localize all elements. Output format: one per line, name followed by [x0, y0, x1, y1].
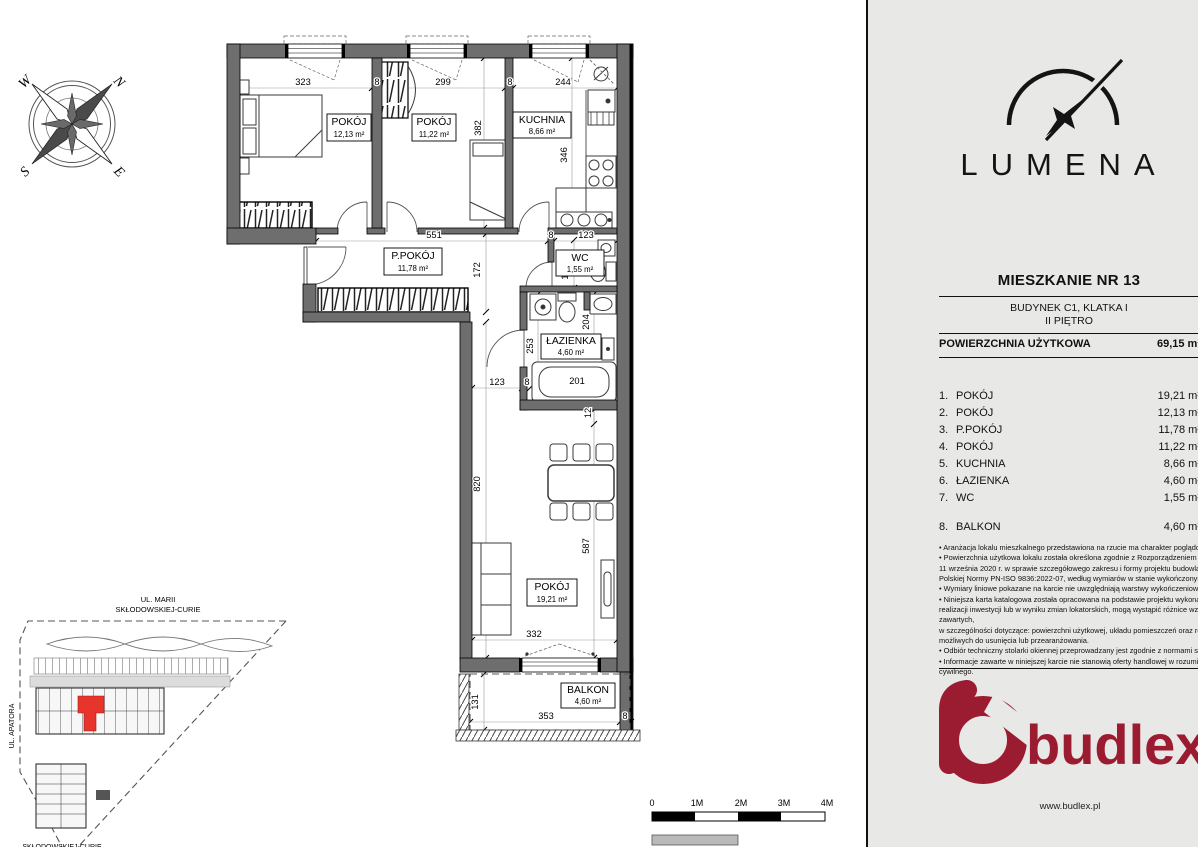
disclaimer-line: realizacji inwestycji lub w wyniku zmian… — [939, 605, 1198, 615]
drainer — [588, 112, 614, 125]
room-list-row: 1. POKÓJ 19,21 m² — [939, 390, 1198, 402]
room-name: POKÓJ — [535, 580, 570, 593]
compass-east-label: E — [110, 163, 128, 181]
kitchen-sink — [588, 90, 615, 112]
dim-253: 253 — [525, 338, 535, 354]
room-area: 1,55 m² — [567, 265, 594, 274]
sofa — [470, 543, 511, 635]
compass-south-label: S — [18, 165, 34, 181]
dim-332: 332 — [526, 629, 542, 639]
window — [406, 36, 468, 80]
disclaimer-line: 11 września 2020 r. w sprawie szczegółow… — [939, 564, 1198, 574]
room-list-row: 2. POKÓJ 12,13 m² — [939, 407, 1198, 419]
disclaimer-line: • Niniejsza karta katalogowa została opr… — [939, 595, 1198, 605]
divider — [939, 668, 1198, 669]
budlex-wordmark: budlex — [1026, 713, 1198, 776]
disclaimer-line: • Odbiór techniczny stolarki okiennej pr… — [939, 646, 1198, 656]
room-label-balkon: BALKON 4,60 m² — [561, 683, 615, 708]
site-plan: UL. MARII SKŁODOWSKIEJ-CURIE UL. APATORA… — [9, 595, 286, 847]
room-area: 4,60 m² — [558, 348, 585, 357]
scale-4m: 4M — [821, 798, 834, 808]
balcony-door — [519, 644, 601, 672]
room-label-pokoj-19: POKÓJ 19,21 m² — [527, 579, 577, 606]
door-kitchen — [519, 202, 549, 232]
room-no: 2. — [939, 407, 956, 419]
dim-131: 131 — [470, 694, 480, 710]
toilet-tank — [606, 262, 616, 281]
road — [30, 676, 230, 687]
landscape-shape — [47, 637, 125, 651]
room-list-row: 4. POKÓJ 11,22 m² — [939, 441, 1198, 453]
dim-353: 353 — [538, 711, 554, 721]
dim-323: 323 — [295, 77, 311, 87]
room-area: 12,13 m² — [1158, 407, 1198, 419]
room-area: 19,21 m² — [537, 595, 568, 604]
disclaimer-line: • Informacje zawarte w niniejszej karcie… — [939, 657, 1198, 667]
door-room — [387, 202, 417, 232]
radiator — [601, 560, 614, 618]
room-area: 8,66 m² — [529, 127, 556, 136]
door-bedroom — [337, 202, 367, 232]
room-label-pokoj-11: POKÓJ 11,22 m² — [412, 114, 456, 141]
dim-8: 8 — [507, 77, 512, 87]
landscape-shape — [125, 637, 201, 651]
floor-plan-sheet: W N S E — [0, 0, 866, 847]
room-area: 1,55 m² — [1164, 492, 1198, 504]
dim-8: 8 — [622, 711, 627, 721]
toilet — [559, 302, 575, 322]
usable-area-value: 69,15 m² — [1157, 338, 1198, 350]
room-label-wc: WC 1,55 m² — [556, 250, 604, 276]
room-area: 11,22 m² — [1158, 441, 1198, 453]
apartment-title: MIESZKANIE NR 13 — [909, 272, 1198, 289]
dim-204: 204 — [581, 314, 591, 330]
dim-8: 8 — [524, 377, 529, 387]
room-area: 8,66 m² — [1164, 458, 1198, 470]
dim-12: 12 — [583, 408, 593, 418]
room-area: 4,60 m² — [1164, 475, 1198, 487]
room-name: POKÓJ — [956, 407, 1158, 419]
chair — [573, 444, 590, 461]
window — [284, 36, 346, 80]
balcony-railing — [459, 674, 469, 730]
chair — [573, 503, 590, 520]
landscape-shape — [201, 638, 272, 651]
compass-rose-icon: W N S E — [16, 72, 128, 181]
room-no: 5. — [939, 458, 956, 470]
cabinet — [556, 188, 586, 212]
street-label-top2: SKŁODOWSKIEJ-CURIE — [115, 605, 200, 614]
divider — [939, 357, 1198, 358]
brand-wordmark: LUMENA — [923, 147, 1198, 183]
dim-587: 587 — [581, 538, 591, 554]
scale-1m: 1M — [691, 798, 704, 808]
room-no: 4. — [939, 441, 956, 453]
divider — [939, 333, 1198, 334]
disclaimer-line: • Aranżacja lokalu mieszkalnego przedsta… — [939, 543, 1198, 553]
chair — [596, 444, 613, 461]
floor-info: II PIĘTRO — [909, 315, 1198, 327]
chair — [596, 503, 613, 520]
dim-551: 551 — [426, 230, 442, 240]
disclaimer-line: • Wymiary liniowe pokazane na karcie nie… — [939, 584, 1198, 594]
wardrobe — [378, 62, 408, 118]
door-entrance — [308, 247, 346, 285]
room-list-row: 7. WC 1,55 m² — [939, 492, 1198, 504]
room-name: ŁAZIENKA — [546, 336, 596, 347]
dim-123: 123 — [489, 377, 505, 387]
compass-north-label: N — [109, 73, 127, 91]
dim-123: 123 — [578, 230, 594, 240]
site-structure — [96, 790, 110, 800]
scale-3m: 3M — [778, 798, 791, 808]
room-name: WC — [571, 253, 589, 264]
balcony-railing — [456, 730, 640, 741]
room-name: POKÓJ — [332, 115, 367, 128]
parking-row — [34, 658, 228, 674]
entrance-threshold — [304, 247, 307, 284]
hall-wardrobe — [318, 288, 468, 312]
room-label-lazienka: ŁAZIENKA 4,60 m² — [541, 334, 601, 359]
room-name: POKÓJ — [956, 441, 1158, 453]
toilet-tank — [558, 293, 576, 301]
street-label-left: UL. APATORA — [9, 703, 16, 748]
compass-west-label: W — [16, 72, 36, 92]
disclaimer-line: możliwych do usunięcia lub przearanżowan… — [939, 636, 1198, 646]
room-name: BALKON — [567, 685, 609, 696]
street-label-top: UL. MARII — [141, 595, 176, 604]
room-no: 7. — [939, 492, 956, 504]
room-area: 11,78 m² — [1158, 424, 1198, 436]
room-area: 12,13 m² — [334, 130, 365, 139]
budlex-logo-icon: budlex — [868, 678, 1198, 798]
dim-244: 244 — [555, 77, 571, 87]
room-name: KUCHNIA — [519, 115, 565, 126]
room-area: 19,21 m² — [1158, 390, 1198, 402]
building-info: BUDYNEK C1, KLATKA I — [909, 302, 1198, 314]
scale-bar: 0 1M 2M 3M 4M — [649, 798, 833, 845]
room-area: 4,60 m² — [575, 697, 602, 706]
balcony-row: 8. BALKON 4,60 m² — [939, 521, 1198, 533]
room-name: KUCHNIA — [956, 458, 1164, 470]
room-name: P.POKÓJ — [391, 249, 434, 262]
door-wc — [526, 262, 552, 288]
room-label-pokoj-12: POKÓJ 12,13 m² — [327, 114, 371, 141]
room-area: 4,60 m² — [1164, 521, 1198, 533]
room-name: POKÓJ — [417, 115, 452, 128]
room-name: BALKON — [956, 521, 1164, 533]
room-list-row: 6. ŁAZIENKA 4,60 m² — [939, 475, 1198, 487]
room-no: 6. — [939, 475, 956, 487]
disclaimer-line: zawartych, — [939, 615, 1198, 625]
info-panel: LUMENA MIESZKANIE NR 13 BUDYNEK C1, KLAT… — [866, 0, 1198, 847]
disclaimer: • Aranżacja lokalu mieszkalnego przedsta… — [939, 543, 1198, 677]
room-area: 11,78 m² — [398, 264, 429, 273]
dining-table — [548, 465, 614, 501]
disclaimer-line: Polskiej Normy PN-ISO 9836:2022-07, wedł… — [939, 574, 1198, 584]
floorplan-card: { "panel": { "brand": "LUMENA", "title":… — [0, 0, 1198, 847]
scale-0: 0 — [649, 798, 654, 808]
window — [528, 36, 590, 82]
dim-8: 8 — [548, 230, 553, 240]
room-area: 11,22 m² — [419, 130, 450, 139]
room-list-row: 3. P.POKÓJ 11,78 m² — [939, 424, 1198, 436]
room-label-ppokoj: P.POKÓJ 11,78 m² — [384, 248, 442, 275]
room-list-row: 5. KUCHNIA 8,66 m² — [939, 458, 1198, 470]
chair — [550, 444, 567, 461]
scale-2m: 2M — [735, 798, 748, 808]
divider — [939, 296, 1198, 297]
dim-346: 346 — [559, 147, 569, 163]
dim-201: 201 — [569, 376, 585, 386]
door-swings — [308, 202, 552, 367]
disclaimer-line: w szczególności dotyczące: powierzchni u… — [939, 626, 1198, 636]
usable-area-label: POWIERZCHNIA UŻYTKOWA — [939, 338, 1091, 350]
dim-382: 382 — [473, 120, 483, 136]
room-label-kuchnia: KUCHNIA 8,66 m² — [513, 112, 571, 138]
dim-299: 299 — [435, 77, 451, 87]
dim-8: 8 — [374, 77, 379, 87]
disclaimer-line: • Powierzchnia użytkowa lokalu została o… — [939, 553, 1198, 563]
room-name: WC — [956, 492, 1164, 504]
usable-area-row: POWIERZCHNIA UŻYTKOWA 69,15 m² — [939, 338, 1198, 350]
room-no: 8. — [939, 521, 956, 533]
room-name: ŁAZIENKA — [956, 475, 1164, 487]
room-name: P.POKÓJ — [956, 424, 1158, 436]
bookshelf — [237, 202, 312, 228]
room-name: POKÓJ — [956, 390, 1158, 402]
door-bathroom — [487, 330, 524, 367]
room-no: 1. — [939, 390, 956, 402]
dim-820: 820 — [472, 476, 482, 492]
chair — [550, 503, 567, 520]
room-no: 3. — [939, 424, 956, 436]
website-url: www.budlex.pl — [939, 801, 1198, 812]
dim-172: 172 — [472, 262, 482, 278]
